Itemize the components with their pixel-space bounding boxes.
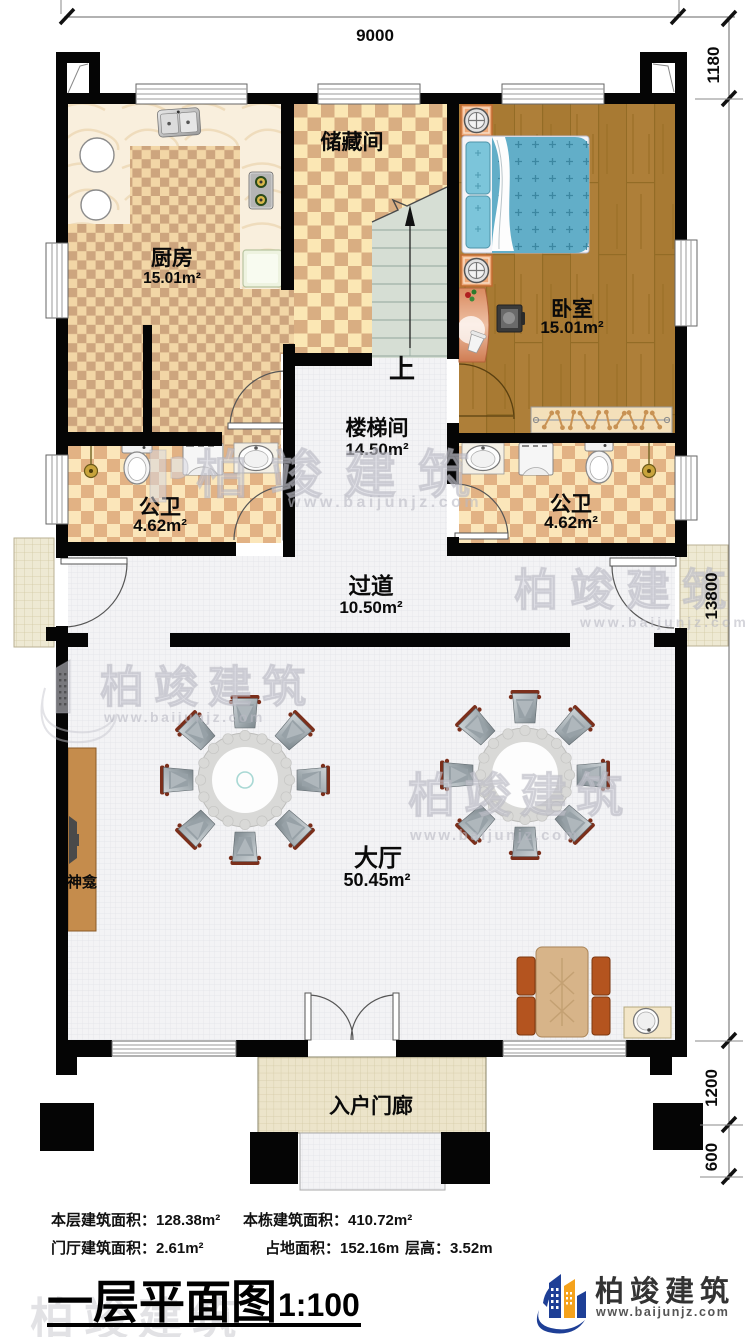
svg-text:上: 上 [389,354,415,384]
svg-text:层高：3.52m: 层高：3.52m [405,1239,493,1257]
svg-text:厨房: 厨房 [151,246,193,270]
svg-text:600: 600 [702,1143,721,1171]
svg-text:过道: 过道 [348,573,394,599]
svg-text:1180: 1180 [704,47,723,84]
svg-text:占地面积：152.16m: 占地面积：152.16m [265,1239,399,1257]
svg-text:本栋建筑面积：410.72m²: 本栋建筑面积：410.72m² [243,1211,412,1229]
svg-text:www.baijunjz.com: www.baijunjz.com [287,494,482,511]
svg-text:本层建筑面积：128.38m²: 本层建筑面积：128.38m² [51,1211,220,1229]
svg-text:15.01m²: 15.01m² [143,270,201,287]
svg-text:柏竣建筑: 柏竣建筑 [100,663,316,712]
svg-text:www.baijunjz.com: www.baijunjz.com [595,1305,729,1319]
svg-text:储藏间: 储藏间 [321,130,384,154]
svg-text:门厅建筑面积：2.61m²: 门厅建筑面积：2.61m² [51,1239,204,1257]
svg-text:神龛: 神龛 [67,873,98,891]
svg-text:50.45m²: 50.45m² [343,870,410,890]
svg-text:4.62m²: 4.62m² [544,513,598,532]
svg-text:15.01m²: 15.01m² [540,318,604,337]
svg-text:9000: 9000 [356,26,394,45]
svg-text:一层平面图: 一层平面图 [47,1276,277,1328]
svg-text:楼梯间: 楼梯间 [346,416,409,440]
svg-text:www.baijunjz.com: www.baijunjz.com [409,827,579,844]
svg-text:13800: 13800 [702,572,721,619]
svg-text:www.baijunjz.com: www.baijunjz.com [579,614,749,630]
svg-text:入户门廊: 入户门廊 [329,1094,413,1118]
svg-text:柏竣建筑: 柏竣建筑 [595,1274,735,1308]
svg-text:10.50m²: 10.50m² [339,598,403,617]
svg-text:4.62m²: 4.62m² [133,516,187,535]
svg-text:柏竣建筑: 柏竣建筑 [408,769,632,822]
svg-text:1200: 1200 [702,1069,721,1107]
svg-text:www.baijunjz.com: www.baijunjz.com [103,709,265,725]
svg-text:1:100: 1:100 [278,1287,360,1323]
svg-text:大厅: 大厅 [354,845,402,872]
